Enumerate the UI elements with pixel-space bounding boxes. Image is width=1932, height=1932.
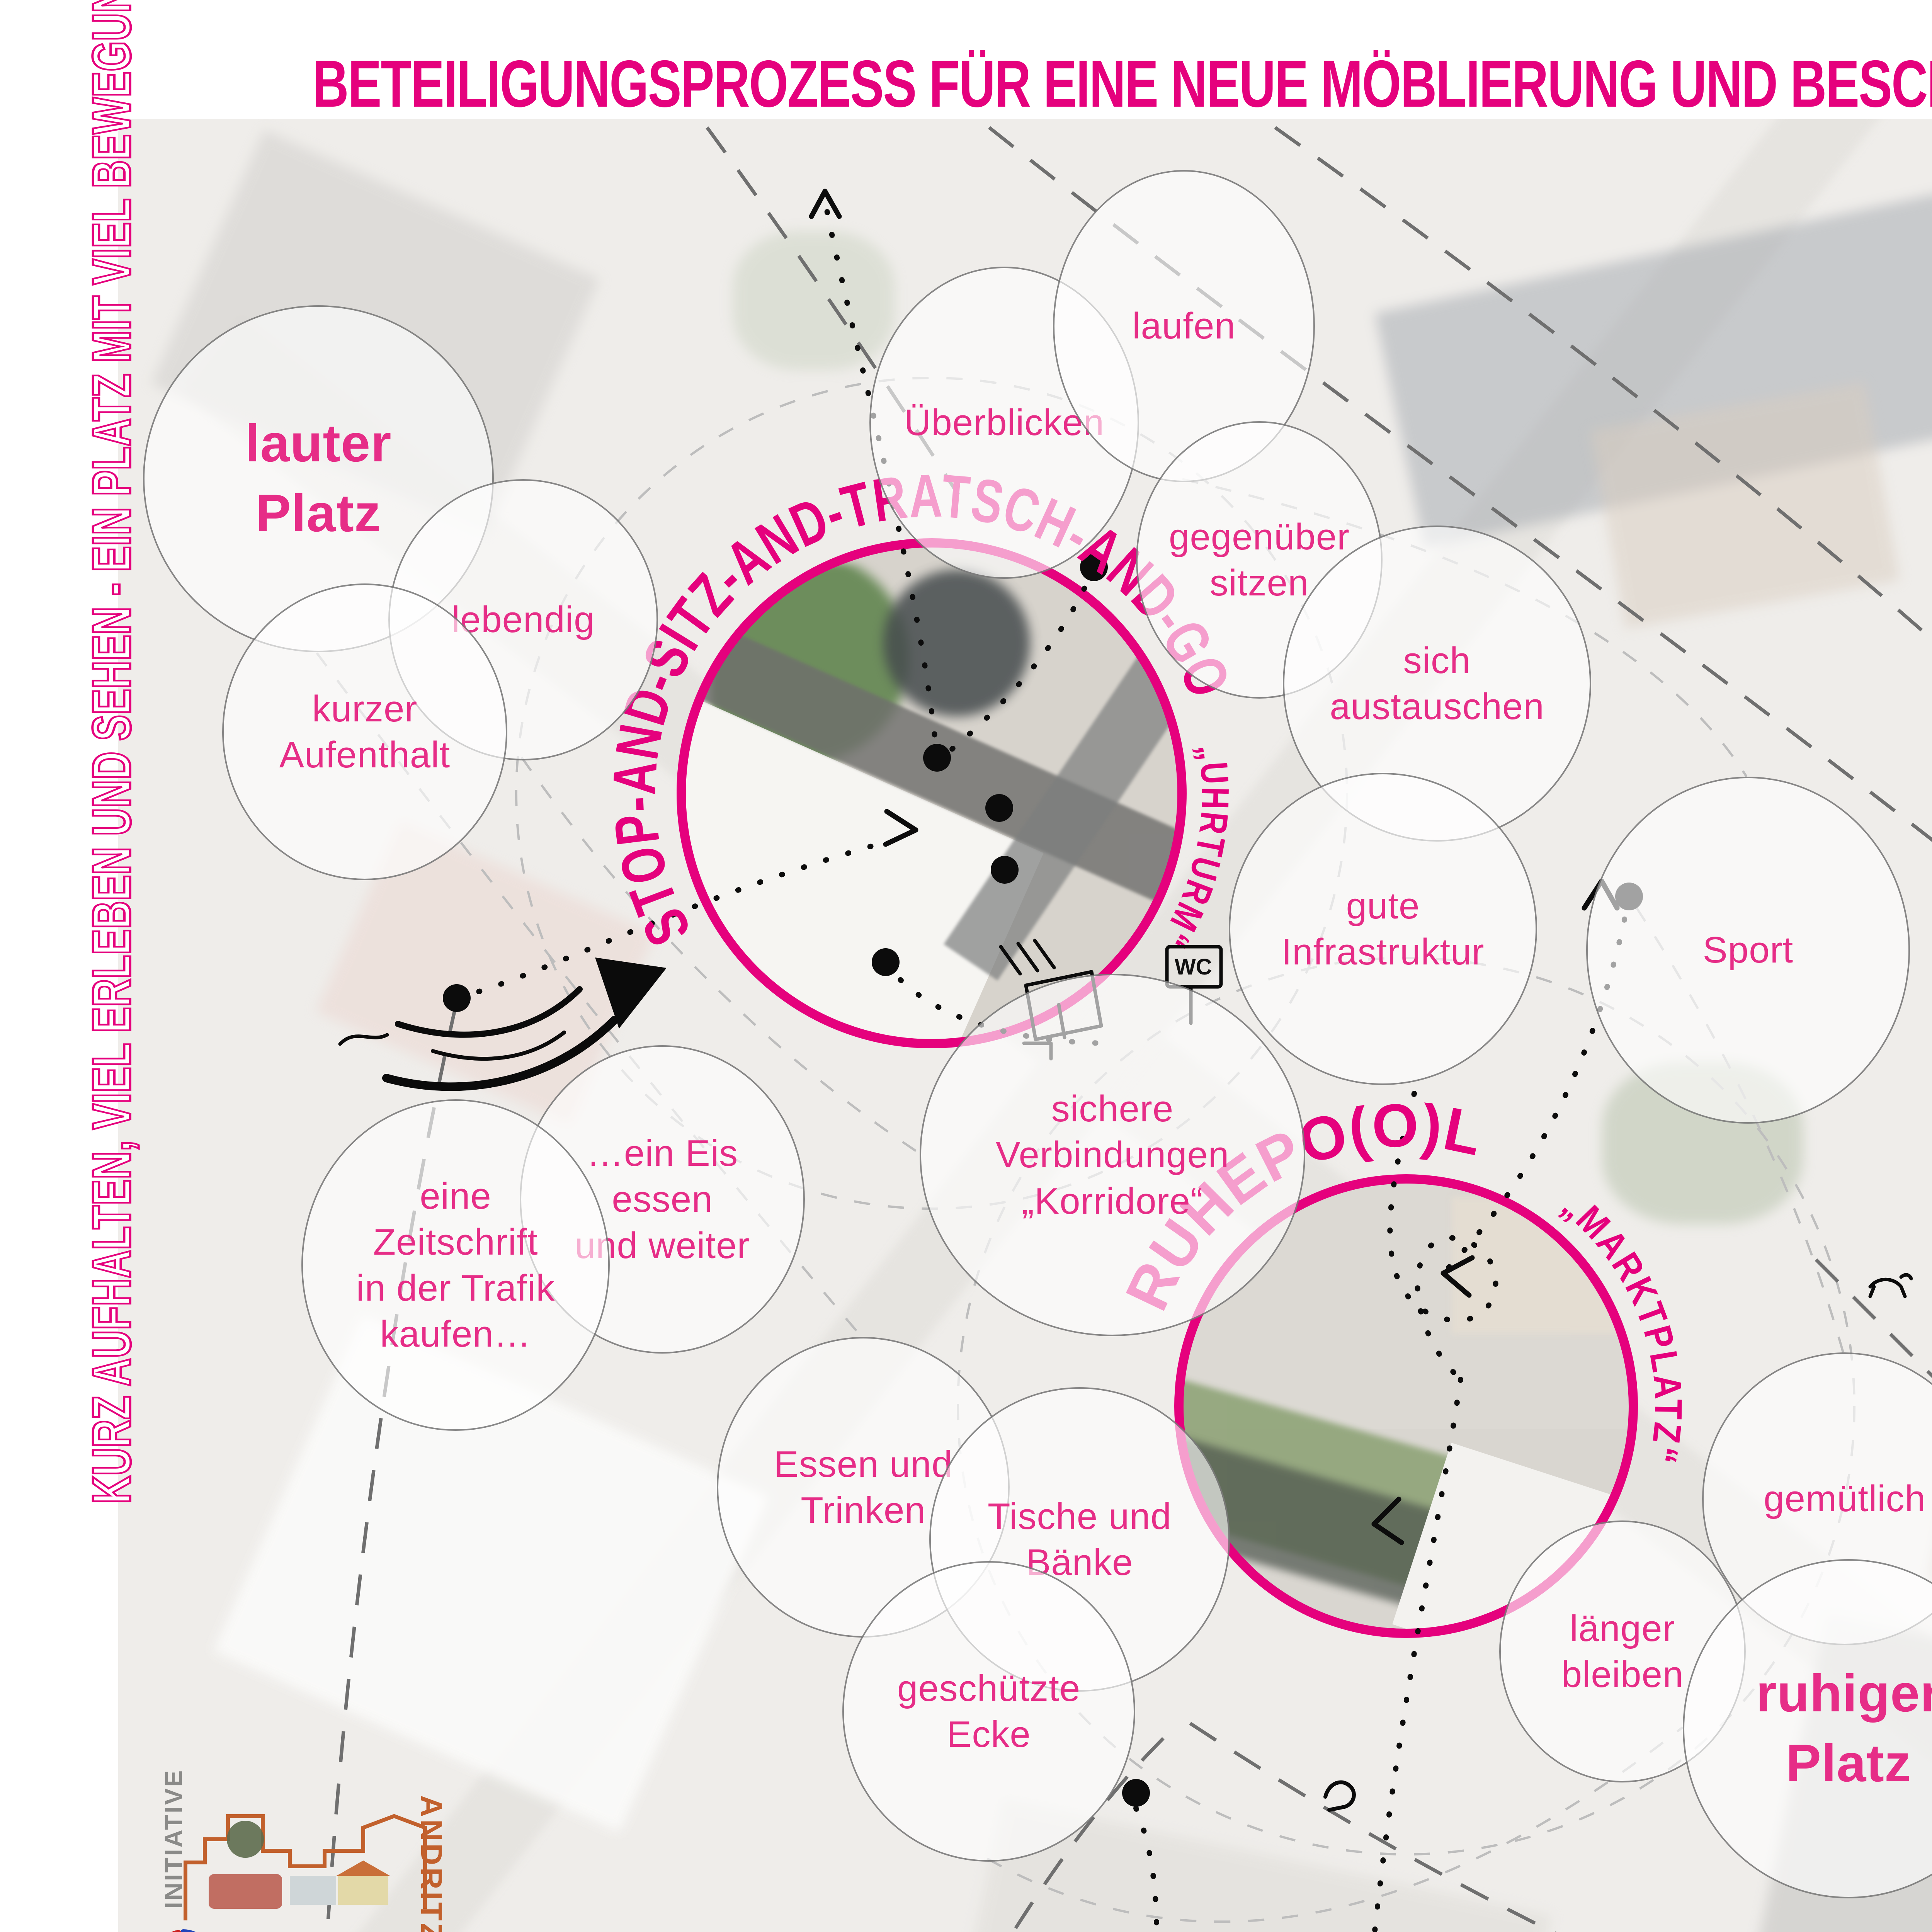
bubble-label: sich austauschen <box>1330 638 1544 730</box>
edge-text-left: KURZ AUFHALTEN, VIEL ERLEBEN UND SEHEN -… <box>80 0 143 1504</box>
svg-text:WC: WC <box>1175 954 1212 980</box>
bubble-sichere-verbindungen: sichere Verbindungen „Korridore“ <box>920 974 1305 1336</box>
logo-initiative-vertical: INITIATIVE <box>159 1769 188 1909</box>
bubble-sport: Sport <box>1586 777 1910 1124</box>
bubble-gute-infrastruktur: gute Infrastruktur <box>1229 773 1537 1085</box>
sketch-cyclist <box>1717 1924 1932 1932</box>
logo-studio-magic: Studio Magic <box>151 1927 499 1932</box>
poster: STOP-AND-SITZ-AND-TRATSCH-AND-GO „UHRTUR… <box>0 0 1932 1932</box>
arrowhead <box>1374 1499 1401 1543</box>
bubble-label: ruhiger Platz <box>1756 1659 1932 1799</box>
bubble-label: Sport <box>1703 927 1793 973</box>
bubble-label: geschützte Ecke <box>897 1665 1080 1757</box>
hub-uhrturm-ring <box>681 543 1182 1044</box>
arrowhead <box>886 811 916 844</box>
sketch-crouching-person <box>1325 1782 1354 1810</box>
bubble-label: länger bleiben <box>1561 1605 1684 1697</box>
bubble-label: eine Zeitschrift in der Trafik kaufen… <box>356 1173 555 1357</box>
hub-uhrturm-subtitle: „UHRTURM“ <box>1152 741 1237 957</box>
bubble-label: gemütlich <box>1764 1476 1926 1522</box>
logo-initiative-lebenswertes-andritz: INITIATIVE LEBENSWERTES ANDRITZ <box>162 1793 464 1932</box>
sketch-dog <box>1870 1275 1911 1296</box>
bubble-geschuetzte-ecke: geschützte Ecke <box>842 1561 1135 1862</box>
bubble-label: laufen <box>1132 303 1236 349</box>
bubble-label: gute Infrastruktur <box>1281 883 1484 975</box>
bubble-label: lauter Platz <box>245 409 391 549</box>
arrowhead <box>1443 1258 1472 1295</box>
page-title: BETEILIGUNGSPROZESS FÜR EINE NEUE MÖBLIE… <box>312 46 1932 122</box>
bubble-kurzer-aufenthalt: kurzer Aufenthalt <box>222 583 507 880</box>
bubble-label: Essen und Trinken <box>774 1441 953 1533</box>
logo-andritz-vertical: ANDRITZ <box>414 1795 449 1932</box>
bubble-label: sichere Verbindungen „Korridore“ <box>996 1086 1230 1224</box>
bubble-label: kurzer Aufenthalt <box>279 686 450 778</box>
bubble-zeitschrift: eine Zeitschrift in der Trafik kaufen… <box>301 1099 610 1431</box>
studio-magic-icon <box>151 1927 215 1932</box>
